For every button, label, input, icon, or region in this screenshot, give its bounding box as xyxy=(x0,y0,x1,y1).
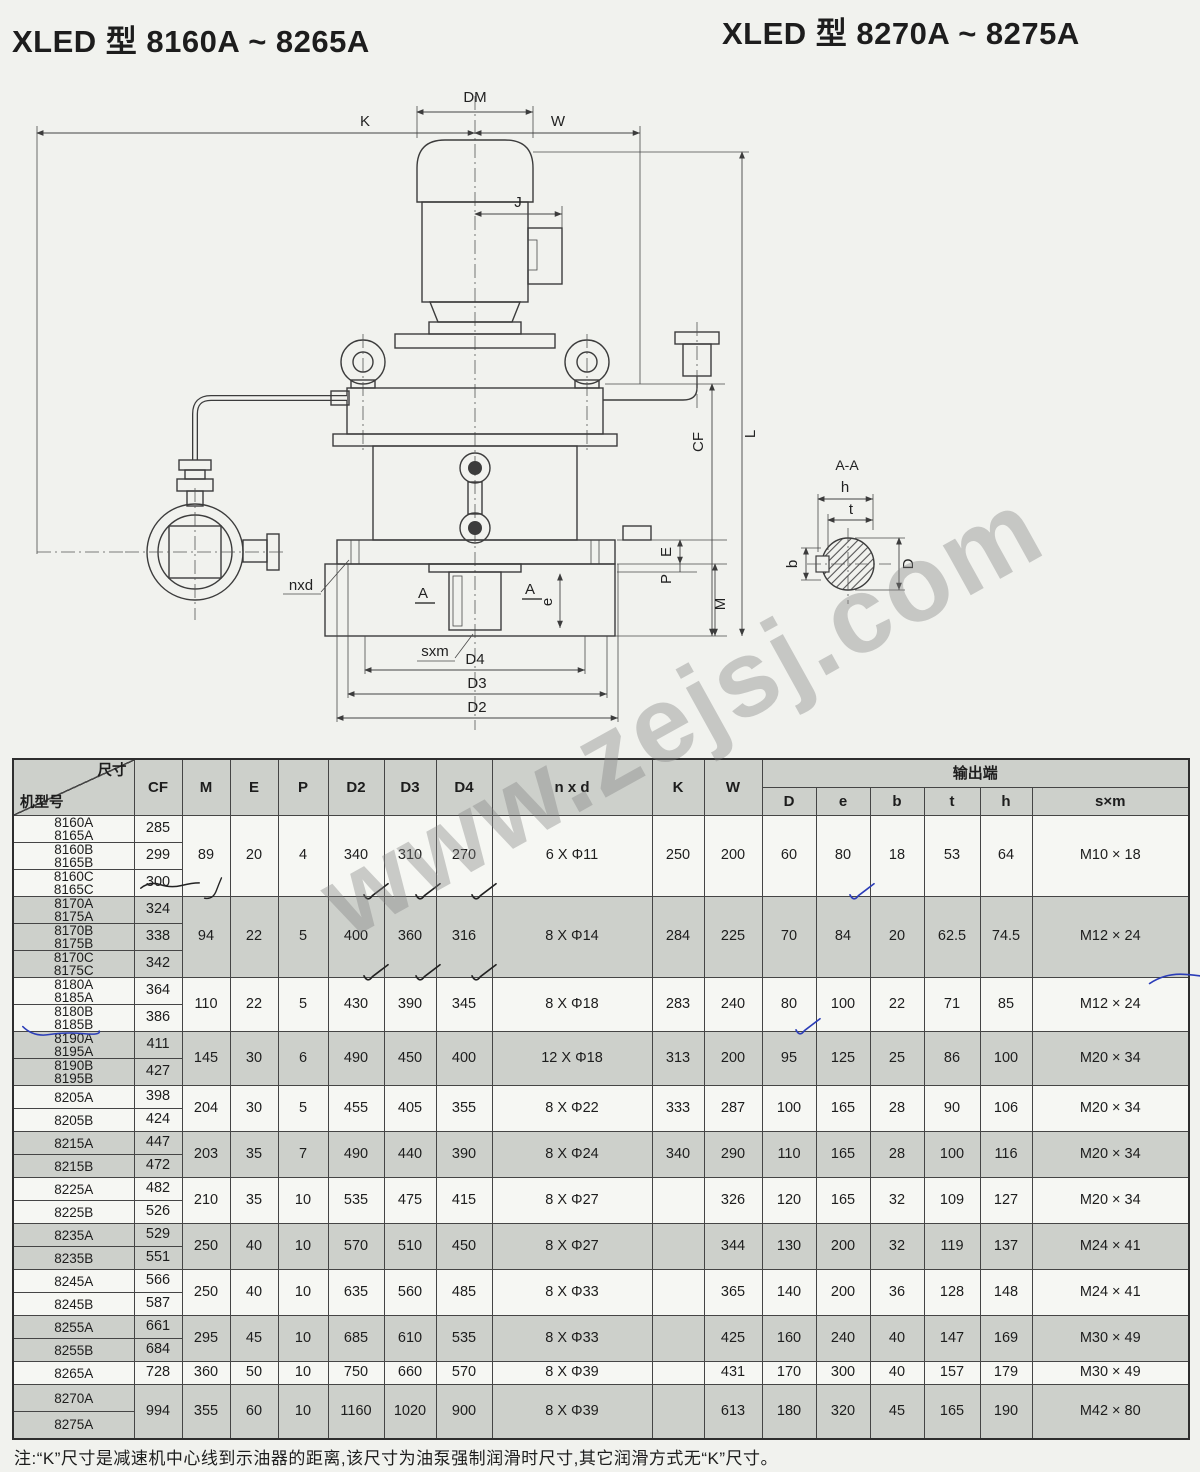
model-cell: 8170C8175C xyxy=(13,951,134,978)
value-cell-k: 283 xyxy=(652,978,704,1032)
dim-label-t: t xyxy=(849,501,854,518)
value-cell-d3: 1020 xyxy=(384,1385,436,1439)
footnote: 注:“K”尺寸是减速机中心线到示油器的距离,该尺寸为油泵强制润滑时尺寸,其它润滑… xyxy=(14,1444,778,1469)
value-cell-d4: 355 xyxy=(436,1086,492,1132)
value-cell-k: 284 xyxy=(652,897,704,978)
table-row: 8255A66129545106856105358 X Φ33425160240… xyxy=(13,1316,1189,1339)
cf-cell: 472 xyxy=(134,1155,182,1178)
value-cell-d3: 475 xyxy=(384,1178,436,1224)
col-header-cf: CF xyxy=(134,759,182,816)
corner-label-model: 机型号 xyxy=(20,796,64,811)
model-cell: 8270A xyxy=(13,1385,134,1412)
value-cell-b: 32 xyxy=(870,1178,924,1224)
col-header-out-d: D xyxy=(762,788,816,816)
value-cell-sxm: M20 × 34 xyxy=(1032,1132,1189,1178)
cut-labels: A A nxd sxm xyxy=(283,560,542,661)
value-cell-t: 147 xyxy=(924,1316,980,1362)
value-cell-b: 36 xyxy=(870,1270,924,1316)
model-cell: 8190B8195B xyxy=(13,1059,134,1086)
value-cell-nxd: 8 X Φ39 xyxy=(492,1362,652,1385)
value-cell-k: 313 xyxy=(652,1032,704,1086)
value-cell-d4: 390 xyxy=(436,1132,492,1178)
value-cell-e: 320 xyxy=(816,1385,870,1439)
col-header-w: W xyxy=(704,759,762,816)
value-cell-k xyxy=(652,1270,704,1316)
value-cell-m: 360 xyxy=(182,1362,230,1385)
value-cell-b: 18 xyxy=(870,816,924,897)
dim-label-k: K xyxy=(360,113,370,130)
cf-cell: 587 xyxy=(134,1293,182,1316)
output-end-outline: e xyxy=(325,564,615,636)
value-cell-k xyxy=(652,1178,704,1224)
value-cell-p: 10 xyxy=(278,1270,328,1316)
table-row: 8225A48221035105354754158 X Φ27326120165… xyxy=(13,1178,1189,1201)
dim-label-nxd: nxd xyxy=(289,577,313,594)
value-cell-nxd: 8 X Φ22 xyxy=(492,1086,652,1132)
table-row: 8215A4472033574904403908 X Φ243402901101… xyxy=(13,1132,1189,1155)
value-cell-sxm: M20 × 34 xyxy=(1032,1032,1189,1086)
value-cell-d2: 490 xyxy=(328,1132,384,1178)
value-cell-h: 64 xyxy=(980,816,1032,897)
value-cell-nxd: 6 X Φ11 xyxy=(492,816,652,897)
value-cell-m: 110 xyxy=(182,978,230,1032)
value-cell-m: 203 xyxy=(182,1132,230,1178)
dim-label-e: E xyxy=(658,547,675,557)
value-cell-p: 10 xyxy=(278,1385,328,1439)
cf-cell: 299 xyxy=(134,843,182,870)
value-cell-w: 287 xyxy=(704,1086,762,1132)
model-cell: 8225B xyxy=(13,1201,134,1224)
model-cell: 8215A xyxy=(13,1132,134,1155)
value-cell-t: 90 xyxy=(924,1086,980,1132)
value-cell-e: 80 xyxy=(816,816,870,897)
value-cell-t: 100 xyxy=(924,1132,980,1178)
model-cell: 8235B xyxy=(13,1247,134,1270)
value-cell-d2: 490 xyxy=(328,1032,384,1086)
value-cell-b: 40 xyxy=(870,1362,924,1385)
value-cell-b: 25 xyxy=(870,1032,924,1086)
motor-outline xyxy=(395,140,562,348)
header-row-1: 尺寸 机型号 CF M E P D2 D3 D4 n x d K W 输出端 xyxy=(13,759,1189,788)
cf-cell: 526 xyxy=(134,1201,182,1224)
page-title-left: XLED 型 8160A ~ 8265A xyxy=(12,16,370,61)
value-cell-d: 160 xyxy=(762,1316,816,1362)
value-cell-k: 250 xyxy=(652,816,704,897)
col-header-out-h: h xyxy=(980,788,1032,816)
table-row: 8245A56625040106355604858 X Φ33365140200… xyxy=(13,1270,1189,1293)
value-cell-k xyxy=(652,1224,704,1270)
value-cell-e: 30 xyxy=(230,1086,278,1132)
table-row: 8170A8175A324942254003603168 X Φ14284225… xyxy=(13,897,1189,924)
table-row: 8190A8195A41114530649045040012 X Φ183132… xyxy=(13,1032,1189,1059)
value-cell-e: 300 xyxy=(816,1362,870,1385)
value-cell-t: 119 xyxy=(924,1224,980,1270)
value-cell-k: 333 xyxy=(652,1086,704,1132)
value-cell-d: 70 xyxy=(762,897,816,978)
cf-cell: 285 xyxy=(134,816,182,843)
value-cell-d2: 1160 xyxy=(328,1385,384,1439)
value-cell-w: 290 xyxy=(704,1132,762,1178)
value-cell-d3: 390 xyxy=(384,978,436,1032)
value-cell-nxd: 8 X Φ24 xyxy=(492,1132,652,1178)
model-cell: 8245B xyxy=(13,1293,134,1316)
value-cell-p: 5 xyxy=(278,978,328,1032)
value-cell-d: 80 xyxy=(762,978,816,1032)
value-cell-e: 60 xyxy=(230,1385,278,1439)
cf-cell: 661 xyxy=(134,1316,182,1339)
dim-label-d2: D2 xyxy=(467,699,486,716)
table-row: 8270A9943556010116010209008 X Φ396131803… xyxy=(13,1385,1189,1412)
cf-cell: 300 xyxy=(134,870,182,897)
dim-label-l: L xyxy=(742,430,759,438)
value-cell-d3: 440 xyxy=(384,1132,436,1178)
value-cell-e: 30 xyxy=(230,1032,278,1086)
cf-cell: 324 xyxy=(134,897,182,924)
dim-label-h: h xyxy=(841,479,849,496)
value-cell-d2: 535 xyxy=(328,1178,384,1224)
page-title-right: XLED 型 8270A ~ 8275A xyxy=(722,8,1080,53)
cf-cell: 411 xyxy=(134,1032,182,1059)
value-cell-m: 250 xyxy=(182,1224,230,1270)
cf-cell: 994 xyxy=(134,1385,182,1439)
value-cell-e: 40 xyxy=(230,1224,278,1270)
model-cell: 8225A xyxy=(13,1178,134,1201)
col-header-d4: D4 xyxy=(436,759,492,816)
value-cell-nxd: 8 X Φ27 xyxy=(492,1224,652,1270)
value-cell-p: 10 xyxy=(278,1362,328,1385)
value-cell-w: 431 xyxy=(704,1362,762,1385)
value-cell-e: 165 xyxy=(816,1132,870,1178)
model-cell: 8205B xyxy=(13,1109,134,1132)
value-cell-p: 10 xyxy=(278,1316,328,1362)
value-cell-d4: 535 xyxy=(436,1316,492,1362)
value-cell-d2: 635 xyxy=(328,1270,384,1316)
value-cell-t: 62.5 xyxy=(924,897,980,978)
value-cell-d: 100 xyxy=(762,1086,816,1132)
col-header-d3: D3 xyxy=(384,759,436,816)
value-cell-w: 425 xyxy=(704,1316,762,1362)
value-cell-d4: 450 xyxy=(436,1224,492,1270)
value-cell-m: 355 xyxy=(182,1385,230,1439)
value-cell-d: 95 xyxy=(762,1032,816,1086)
dim-label-m: M xyxy=(712,598,729,611)
value-cell-e: 22 xyxy=(230,897,278,978)
value-cell-h: 169 xyxy=(980,1316,1032,1362)
model-cell: 8160C8165C xyxy=(13,870,134,897)
value-cell-t: 86 xyxy=(924,1032,980,1086)
value-cell-d3: 405 xyxy=(384,1086,436,1132)
value-cell-sxm: M30 × 49 xyxy=(1032,1362,1189,1385)
value-cell-d2: 455 xyxy=(328,1086,384,1132)
value-cell-sxm: M10 × 18 xyxy=(1032,816,1189,897)
value-cell-h: 106 xyxy=(980,1086,1032,1132)
value-cell-w: 613 xyxy=(704,1385,762,1439)
value-cell-p: 10 xyxy=(278,1224,328,1270)
value-cell-m: 89 xyxy=(182,816,230,897)
value-cell-b: 22 xyxy=(870,978,924,1032)
value-cell-d: 60 xyxy=(762,816,816,897)
value-cell-d2: 340 xyxy=(328,816,384,897)
value-cell-d4: 400 xyxy=(436,1032,492,1086)
value-cell-p: 4 xyxy=(278,816,328,897)
value-cell-w: 326 xyxy=(704,1178,762,1224)
value-cell-p: 7 xyxy=(278,1132,328,1178)
value-cell-d: 170 xyxy=(762,1362,816,1385)
col-header-d2: D2 xyxy=(328,759,384,816)
col-header-out-e: e xyxy=(816,788,870,816)
cf-cell: 386 xyxy=(134,1005,182,1032)
value-cell-e: 40 xyxy=(230,1270,278,1316)
cf-cell: 342 xyxy=(134,951,182,978)
value-cell-m: 250 xyxy=(182,1270,230,1316)
model-cell: 8160B8165B xyxy=(13,843,134,870)
value-cell-sxm: M12 × 24 xyxy=(1032,897,1189,978)
value-cell-e: 35 xyxy=(230,1132,278,1178)
value-cell-b: 32 xyxy=(870,1224,924,1270)
technical-drawing: DM K W J L CF E P xyxy=(25,82,965,772)
dim-label-dm: DM xyxy=(463,89,486,106)
cf-cell: 482 xyxy=(134,1178,182,1201)
table-row: 8205A3982043054554053558 X Φ223332871001… xyxy=(13,1086,1189,1109)
value-cell-e: 165 xyxy=(816,1086,870,1132)
col-header-k: K xyxy=(652,759,704,816)
dim-label-d3: D3 xyxy=(467,675,486,692)
dim-label-sxm: sxm xyxy=(421,643,449,660)
corner-header: 尺寸 机型号 xyxy=(13,759,134,816)
value-cell-k: 340 xyxy=(652,1132,704,1178)
model-cell: 8235A xyxy=(13,1224,134,1247)
cf-cell: 684 xyxy=(134,1339,182,1362)
value-cell-d3: 660 xyxy=(384,1362,436,1385)
col-header-nxd: n x d xyxy=(492,759,652,816)
dim-label-j: J xyxy=(514,194,522,211)
value-cell-e: 84 xyxy=(816,897,870,978)
value-cell-m: 210 xyxy=(182,1178,230,1224)
corner-label-size: 尺寸 xyxy=(98,764,127,779)
value-cell-nxd: 8 X Φ39 xyxy=(492,1385,652,1439)
value-cell-nxd: 12 X Φ18 xyxy=(492,1032,652,1086)
col-header-e: E xyxy=(230,759,278,816)
value-cell-d3: 450 xyxy=(384,1032,436,1086)
cf-cell: 427 xyxy=(134,1059,182,1086)
value-cell-e: 200 xyxy=(816,1224,870,1270)
value-cell-b: 45 xyxy=(870,1385,924,1439)
value-cell-b: 20 xyxy=(870,897,924,978)
model-cell: 8190A8195A xyxy=(13,1032,134,1059)
model-cell: 8180A8185A xyxy=(13,978,134,1005)
cf-cell: 338 xyxy=(134,924,182,951)
dim-label-d4: D4 xyxy=(465,651,484,668)
section-a-a: A-A h t b D xyxy=(784,457,917,604)
model-cell: 8180B8185B xyxy=(13,1005,134,1032)
value-cell-sxm: M30 × 49 xyxy=(1032,1316,1189,1362)
cf-cell: 447 xyxy=(134,1132,182,1155)
table-row: 8180A8185A3641102254303903458 X Φ1828324… xyxy=(13,978,1189,1005)
model-cell: 8275A xyxy=(13,1412,134,1439)
model-cell: 8160A8165A xyxy=(13,816,134,843)
value-cell-d2: 685 xyxy=(328,1316,384,1362)
model-cell: 8265A xyxy=(13,1362,134,1385)
cf-cell: 728 xyxy=(134,1362,182,1385)
value-cell-w: 344 xyxy=(704,1224,762,1270)
col-header-p: P xyxy=(278,759,328,816)
value-cell-t: 109 xyxy=(924,1178,980,1224)
dimension-table: 尺寸 机型号 CF M E P D2 D3 D4 n x d K W 输出端 D… xyxy=(12,758,1190,1440)
value-cell-e: 165 xyxy=(816,1178,870,1224)
value-cell-p: 5 xyxy=(278,1086,328,1132)
value-cell-e: 100 xyxy=(816,978,870,1032)
page: XLED 型 8160A ~ 8265A XLED 型 8270A ~ 8275… xyxy=(0,0,1200,1472)
col-header-out-sxm: s×m xyxy=(1032,788,1189,816)
top-dimensions: DM K W J xyxy=(37,89,640,554)
model-cell: 8255B xyxy=(13,1339,134,1362)
value-cell-e: 35 xyxy=(230,1178,278,1224)
value-cell-nxd: 8 X Φ33 xyxy=(492,1270,652,1316)
value-cell-h: 190 xyxy=(980,1385,1032,1439)
value-cell-d3: 360 xyxy=(384,897,436,978)
col-header-out-t: t xyxy=(924,788,980,816)
breather-outline xyxy=(603,322,719,412)
value-cell-w: 365 xyxy=(704,1270,762,1316)
output-group-header: 输出端 xyxy=(762,759,1189,788)
table-row: 8160A8165A285892043403102706 X Φ11250200… xyxy=(13,816,1189,843)
value-cell-w: 200 xyxy=(704,816,762,897)
value-cell-d: 130 xyxy=(762,1224,816,1270)
value-cell-sxm: M12 × 24 xyxy=(1032,978,1189,1032)
value-cell-d4: 415 xyxy=(436,1178,492,1224)
reducer-outline xyxy=(333,334,651,564)
dim-label-b: b xyxy=(784,560,801,568)
value-cell-b: 28 xyxy=(870,1132,924,1178)
table-row: 8265A72836050107506605708 X Φ39431170300… xyxy=(13,1362,1189,1385)
value-cell-sxm: M24 × 41 xyxy=(1032,1224,1189,1270)
value-cell-k xyxy=(652,1362,704,1385)
value-cell-d3: 560 xyxy=(384,1270,436,1316)
value-cell-d2: 570 xyxy=(328,1224,384,1270)
value-cell-d: 140 xyxy=(762,1270,816,1316)
value-cell-sxm: M20 × 34 xyxy=(1032,1178,1189,1224)
value-cell-nxd: 8 X Φ27 xyxy=(492,1178,652,1224)
col-header-m: M xyxy=(182,759,230,816)
model-cell: 8215B xyxy=(13,1155,134,1178)
table-body: 8160A8165A285892043403102706 X Φ11250200… xyxy=(13,816,1189,1439)
value-cell-h: 85 xyxy=(980,978,1032,1032)
value-cell-m: 145 xyxy=(182,1032,230,1086)
model-cell: 8170A8175A xyxy=(13,897,134,924)
value-cell-m: 295 xyxy=(182,1316,230,1362)
value-cell-h: 137 xyxy=(980,1224,1032,1270)
section-cut-a2: A xyxy=(525,581,535,598)
value-cell-m: 204 xyxy=(182,1086,230,1132)
value-cell-sxm: M42 × 80 xyxy=(1032,1385,1189,1439)
value-cell-e: 45 xyxy=(230,1316,278,1362)
model-cell: 8170B8175B xyxy=(13,924,134,951)
value-cell-d4: 900 xyxy=(436,1385,492,1439)
value-cell-b: 40 xyxy=(870,1316,924,1362)
value-cell-h: 116 xyxy=(980,1132,1032,1178)
value-cell-sxm: M20 × 34 xyxy=(1032,1086,1189,1132)
value-cell-e: 125 xyxy=(816,1032,870,1086)
value-cell-b: 28 xyxy=(870,1086,924,1132)
value-cell-p: 10 xyxy=(278,1178,328,1224)
value-cell-e: 240 xyxy=(816,1316,870,1362)
model-cell: 8205A xyxy=(13,1086,134,1109)
value-cell-d3: 310 xyxy=(384,816,436,897)
cf-cell: 364 xyxy=(134,978,182,1005)
value-cell-w: 225 xyxy=(704,897,762,978)
value-cell-w: 200 xyxy=(704,1032,762,1086)
value-cell-d2: 430 xyxy=(328,978,384,1032)
value-cell-t: 165 xyxy=(924,1385,980,1439)
value-cell-d: 120 xyxy=(762,1178,816,1224)
cf-cell: 398 xyxy=(134,1086,182,1109)
bottom-dimensions: D4 D3 D2 xyxy=(337,564,618,722)
value-cell-e: 22 xyxy=(230,978,278,1032)
dim-label-cf: CF xyxy=(690,432,707,452)
value-cell-t: 157 xyxy=(924,1362,980,1385)
value-cell-nxd: 8 X Φ33 xyxy=(492,1316,652,1362)
value-cell-w: 240 xyxy=(704,978,762,1032)
table-row: 8235A52925040105705104508 X Φ27344130200… xyxy=(13,1224,1189,1247)
value-cell-p: 5 xyxy=(278,897,328,978)
value-cell-nxd: 8 X Φ18 xyxy=(492,978,652,1032)
value-cell-d2: 750 xyxy=(328,1362,384,1385)
value-cell-d3: 510 xyxy=(384,1224,436,1270)
value-cell-d2: 400 xyxy=(328,897,384,978)
value-cell-d3: 610 xyxy=(384,1316,436,1362)
value-cell-d4: 345 xyxy=(436,978,492,1032)
value-cell-h: 100 xyxy=(980,1032,1032,1086)
col-header-out-b: b xyxy=(870,788,924,816)
value-cell-d: 110 xyxy=(762,1132,816,1178)
value-cell-nxd: 8 X Φ14 xyxy=(492,897,652,978)
value-cell-h: 148 xyxy=(980,1270,1032,1316)
value-cell-sxm: M24 × 41 xyxy=(1032,1270,1189,1316)
value-cell-p: 6 xyxy=(278,1032,328,1086)
value-cell-t: 128 xyxy=(924,1270,980,1316)
value-cell-k xyxy=(652,1316,704,1362)
cf-cell: 566 xyxy=(134,1270,182,1293)
section-title: A-A xyxy=(835,457,859,473)
dim-label-p: P xyxy=(658,574,675,584)
value-cell-h: 179 xyxy=(980,1362,1032,1385)
value-cell-d4: 485 xyxy=(436,1270,492,1316)
value-cell-d4: 570 xyxy=(436,1362,492,1385)
cf-cell: 529 xyxy=(134,1224,182,1247)
dim-label-w: W xyxy=(551,113,566,130)
value-cell-t: 53 xyxy=(924,816,980,897)
section-cut-a1: A xyxy=(418,585,428,602)
value-cell-d: 180 xyxy=(762,1385,816,1439)
cf-cell: 424 xyxy=(134,1109,182,1132)
value-cell-m: 94 xyxy=(182,897,230,978)
value-cell-e: 200 xyxy=(816,1270,870,1316)
value-cell-h: 127 xyxy=(980,1178,1032,1224)
value-cell-e: 50 xyxy=(230,1362,278,1385)
value-cell-e: 20 xyxy=(230,816,278,897)
value-cell-d4: 270 xyxy=(436,816,492,897)
value-cell-k xyxy=(652,1385,704,1439)
model-cell: 8245A xyxy=(13,1270,134,1293)
cf-cell: 551 xyxy=(134,1247,182,1270)
value-cell-h: 74.5 xyxy=(980,897,1032,978)
dim-label-dd: D xyxy=(900,558,917,569)
value-cell-d4: 316 xyxy=(436,897,492,978)
value-cell-t: 71 xyxy=(924,978,980,1032)
model-cell: 8255A xyxy=(13,1316,134,1339)
